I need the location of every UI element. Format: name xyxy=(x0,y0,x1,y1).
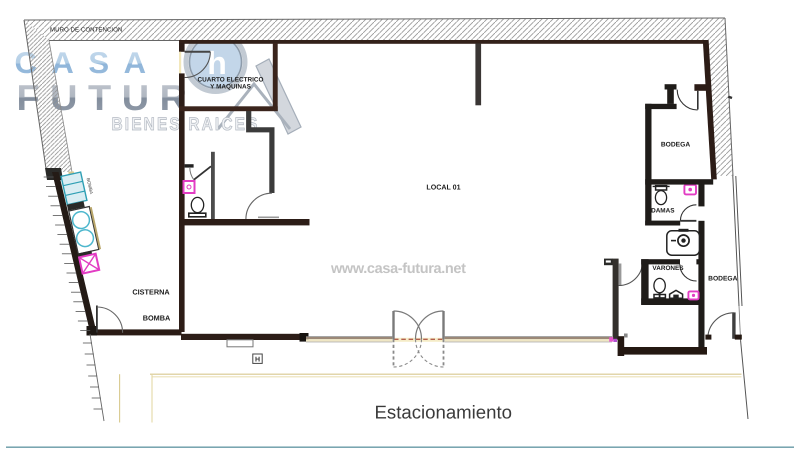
svg-text:Estacionamiento: Estacionamiento xyxy=(375,402,512,423)
svg-text:DAMAS: DAMAS xyxy=(651,208,675,215)
svg-text:CUARTO ELECTRICO: CUARTO ELECTRICO xyxy=(198,77,264,84)
svg-text:VARONES: VARONES xyxy=(652,265,684,272)
svg-text:h: h xyxy=(207,45,227,81)
svg-text:BIENES RAICES: BIENES RAICES xyxy=(112,114,260,134)
svg-text:CISTERNA: CISTERNA xyxy=(132,288,170,297)
svg-text:Y MAQUINAS: Y MAQUINAS xyxy=(210,84,251,91)
svg-text:MURO DE CONTENCION: MURO DE CONTENCION xyxy=(50,27,122,34)
svg-text:LOCAL 01: LOCAL 01 xyxy=(426,184,460,192)
svg-text:H: H xyxy=(255,357,260,364)
svg-text:www.casa-futura.net: www.casa-futura.net xyxy=(330,261,466,277)
svg-text:BODEGA: BODEGA xyxy=(708,276,738,283)
svg-text:BOMBA: BOMBA xyxy=(143,313,171,322)
svg-text:BOMBA: BOMBA xyxy=(86,178,94,195)
svg-text:BODEGA: BODEGA xyxy=(661,141,691,148)
